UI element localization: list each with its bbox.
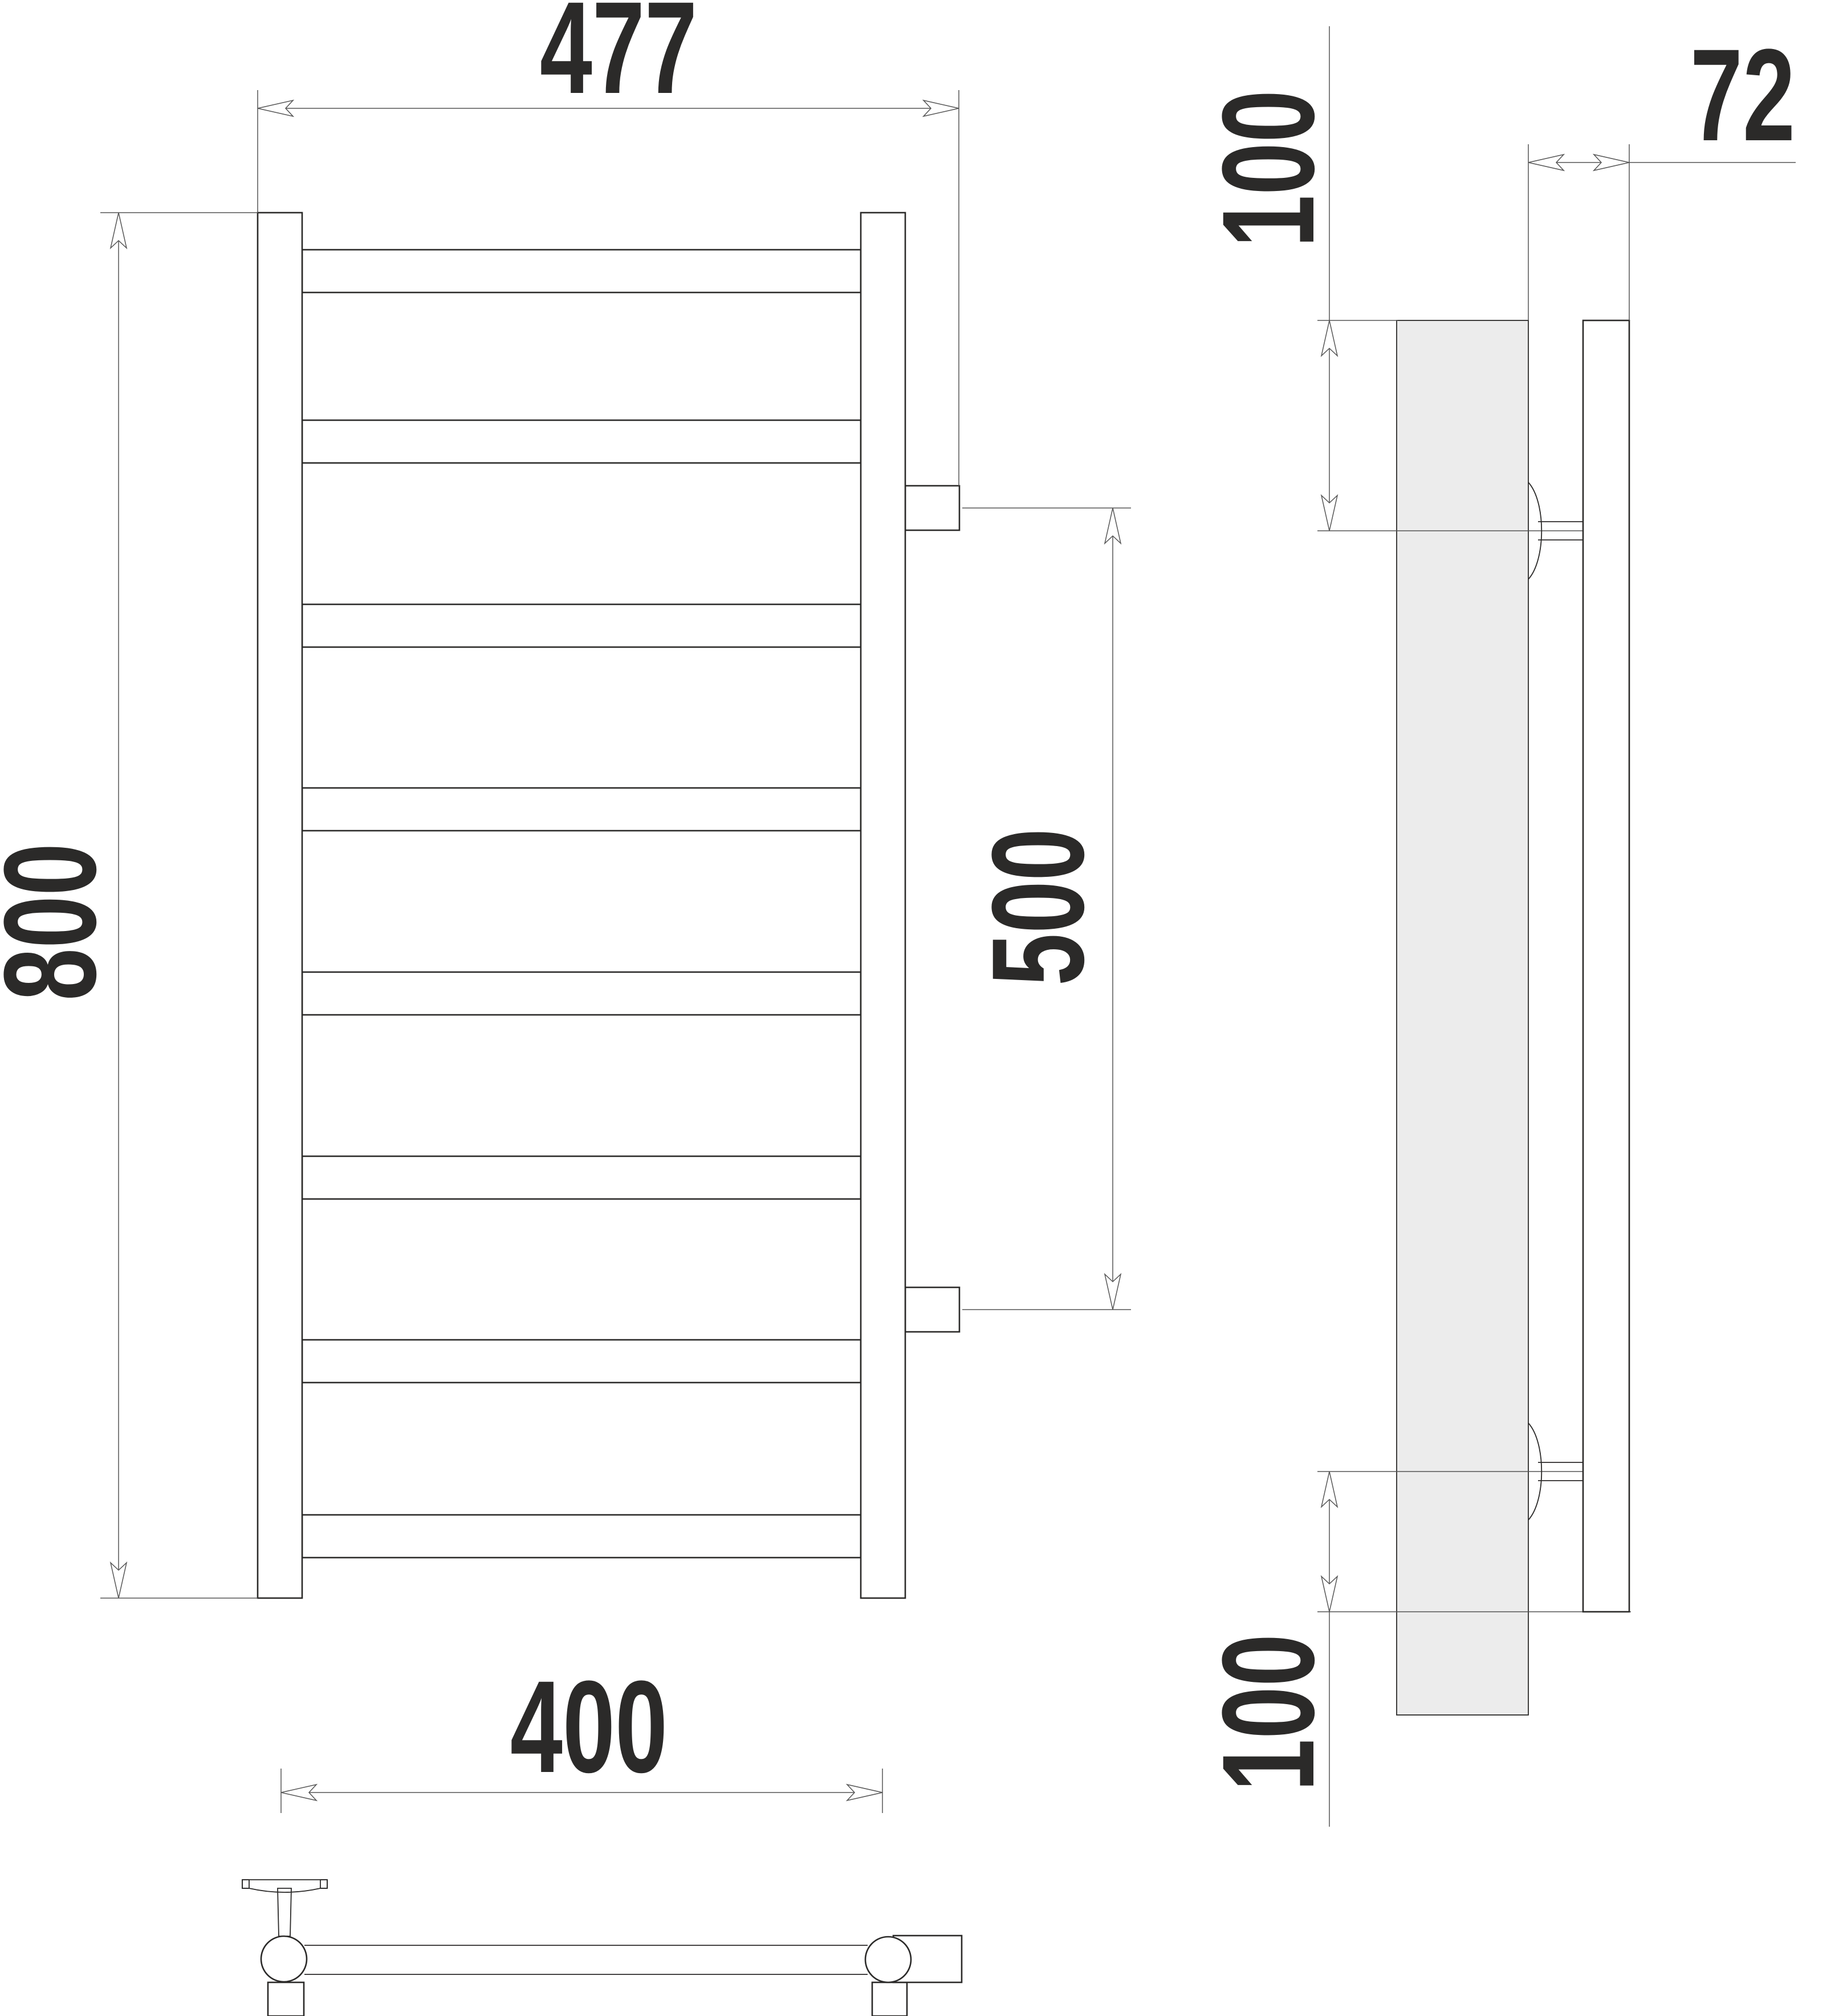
bracket-flange-plate — [242, 1880, 327, 1892]
left-post — [258, 213, 302, 1598]
dim-label-wall-depth: 72 — [1690, 22, 1795, 168]
bottom-connection-stub — [905, 1287, 959, 1332]
dim-connection-spacing: 500 — [962, 508, 1131, 1310]
bracket-bottom-view — [242, 1880, 327, 1936]
right-foot — [872, 1982, 907, 2016]
rungs — [302, 250, 861, 1558]
rung-6 — [302, 1156, 861, 1199]
dim-wall-depth: 72 — [1528, 22, 1796, 320]
rung-8 — [302, 1515, 861, 1558]
dim-top-offset: 100 — [1195, 26, 1341, 531]
drawing-sheet: 477 800 500 400 100 100 — [0, 0, 1847, 2016]
left-foot — [268, 1982, 304, 2016]
dim-label-front-width: 477 — [540, 0, 697, 121]
rung-4 — [302, 788, 861, 831]
bottom-view — [242, 1880, 962, 2016]
dim-label-front-height: 800 — [0, 843, 123, 1001]
front-view — [258, 213, 959, 1598]
dim-label-post-spacing: 400 — [510, 1654, 668, 1800]
post-side-profile — [1583, 320, 1629, 1612]
rung-7 — [302, 1340, 861, 1383]
flange-left-tab — [242, 1880, 249, 1888]
left-post-section — [261, 1936, 307, 1982]
right-post — [861, 213, 905, 1598]
rung-5 — [302, 972, 861, 1015]
rung-2 — [302, 420, 861, 463]
dim-bottom-offset: 100 — [1195, 1472, 1341, 1827]
rung-1 — [302, 250, 861, 292]
top-connection-stub — [905, 486, 959, 530]
dim-post-spacing: 400 — [281, 1654, 882, 1813]
dim-label-bottom-offset: 100 — [1195, 1634, 1341, 1791]
dim-front-height: 800 — [0, 213, 258, 1598]
flange-right-tab — [320, 1880, 327, 1888]
dim-label-connection-spacing: 500 — [965, 828, 1111, 986]
dim-front-width: 477 — [258, 0, 959, 486]
bracket-stem — [278, 1888, 291, 1936]
towel-rail-technical-drawing: 477 800 500 400 100 100 — [0, 0, 1847, 2016]
right-post-section — [865, 1937, 911, 1982]
wall-panel — [1397, 320, 1528, 1715]
side-view — [1317, 320, 1631, 1715]
dim-label-top-offset: 100 — [1195, 90, 1341, 247]
rung-3 — [302, 604, 861, 647]
